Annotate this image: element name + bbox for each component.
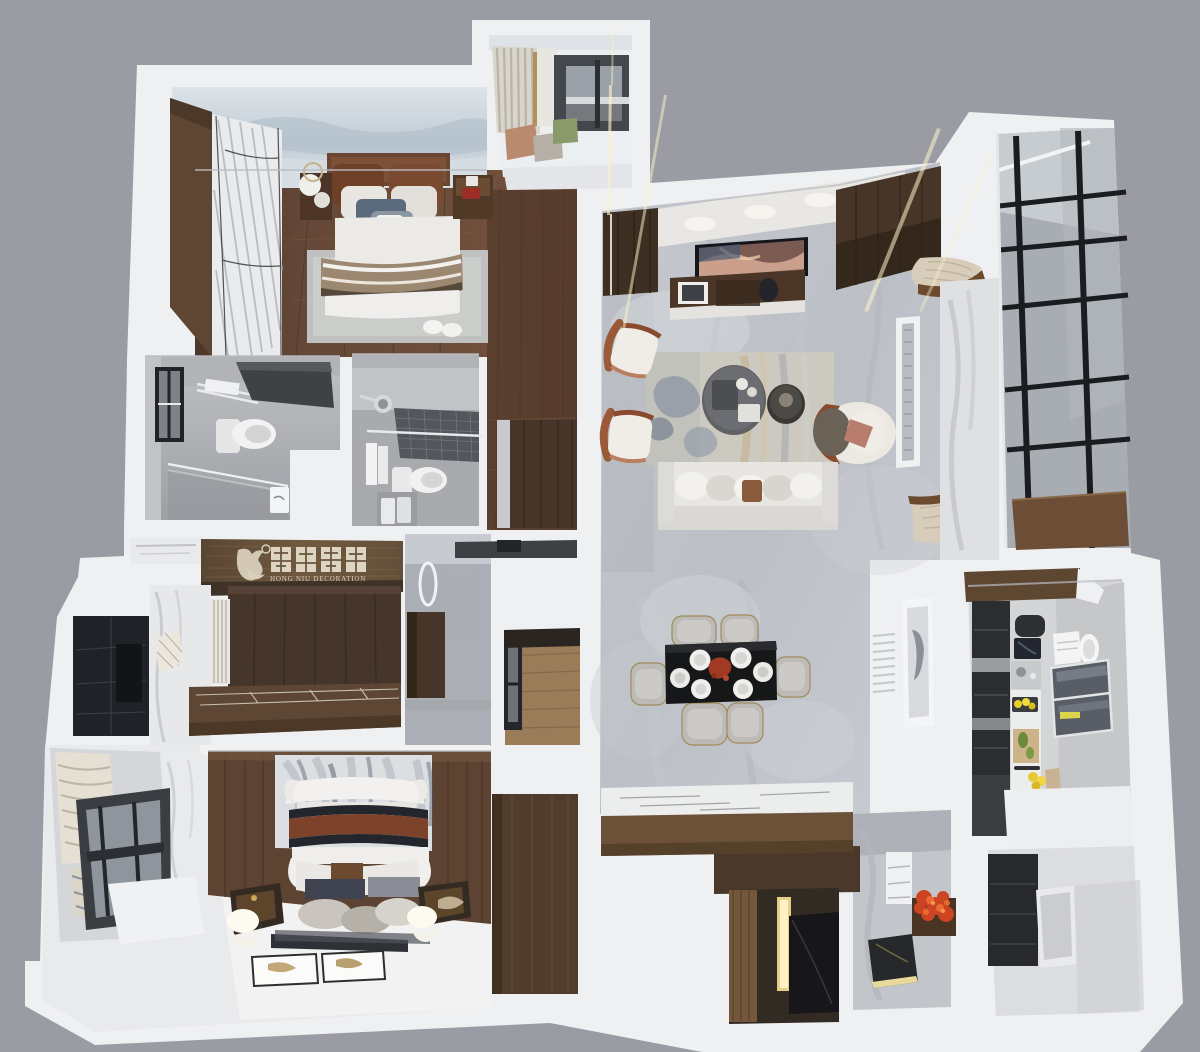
- svg-text:HONG NIU DECORATION: HONG NIU DECORATION: [270, 575, 366, 583]
